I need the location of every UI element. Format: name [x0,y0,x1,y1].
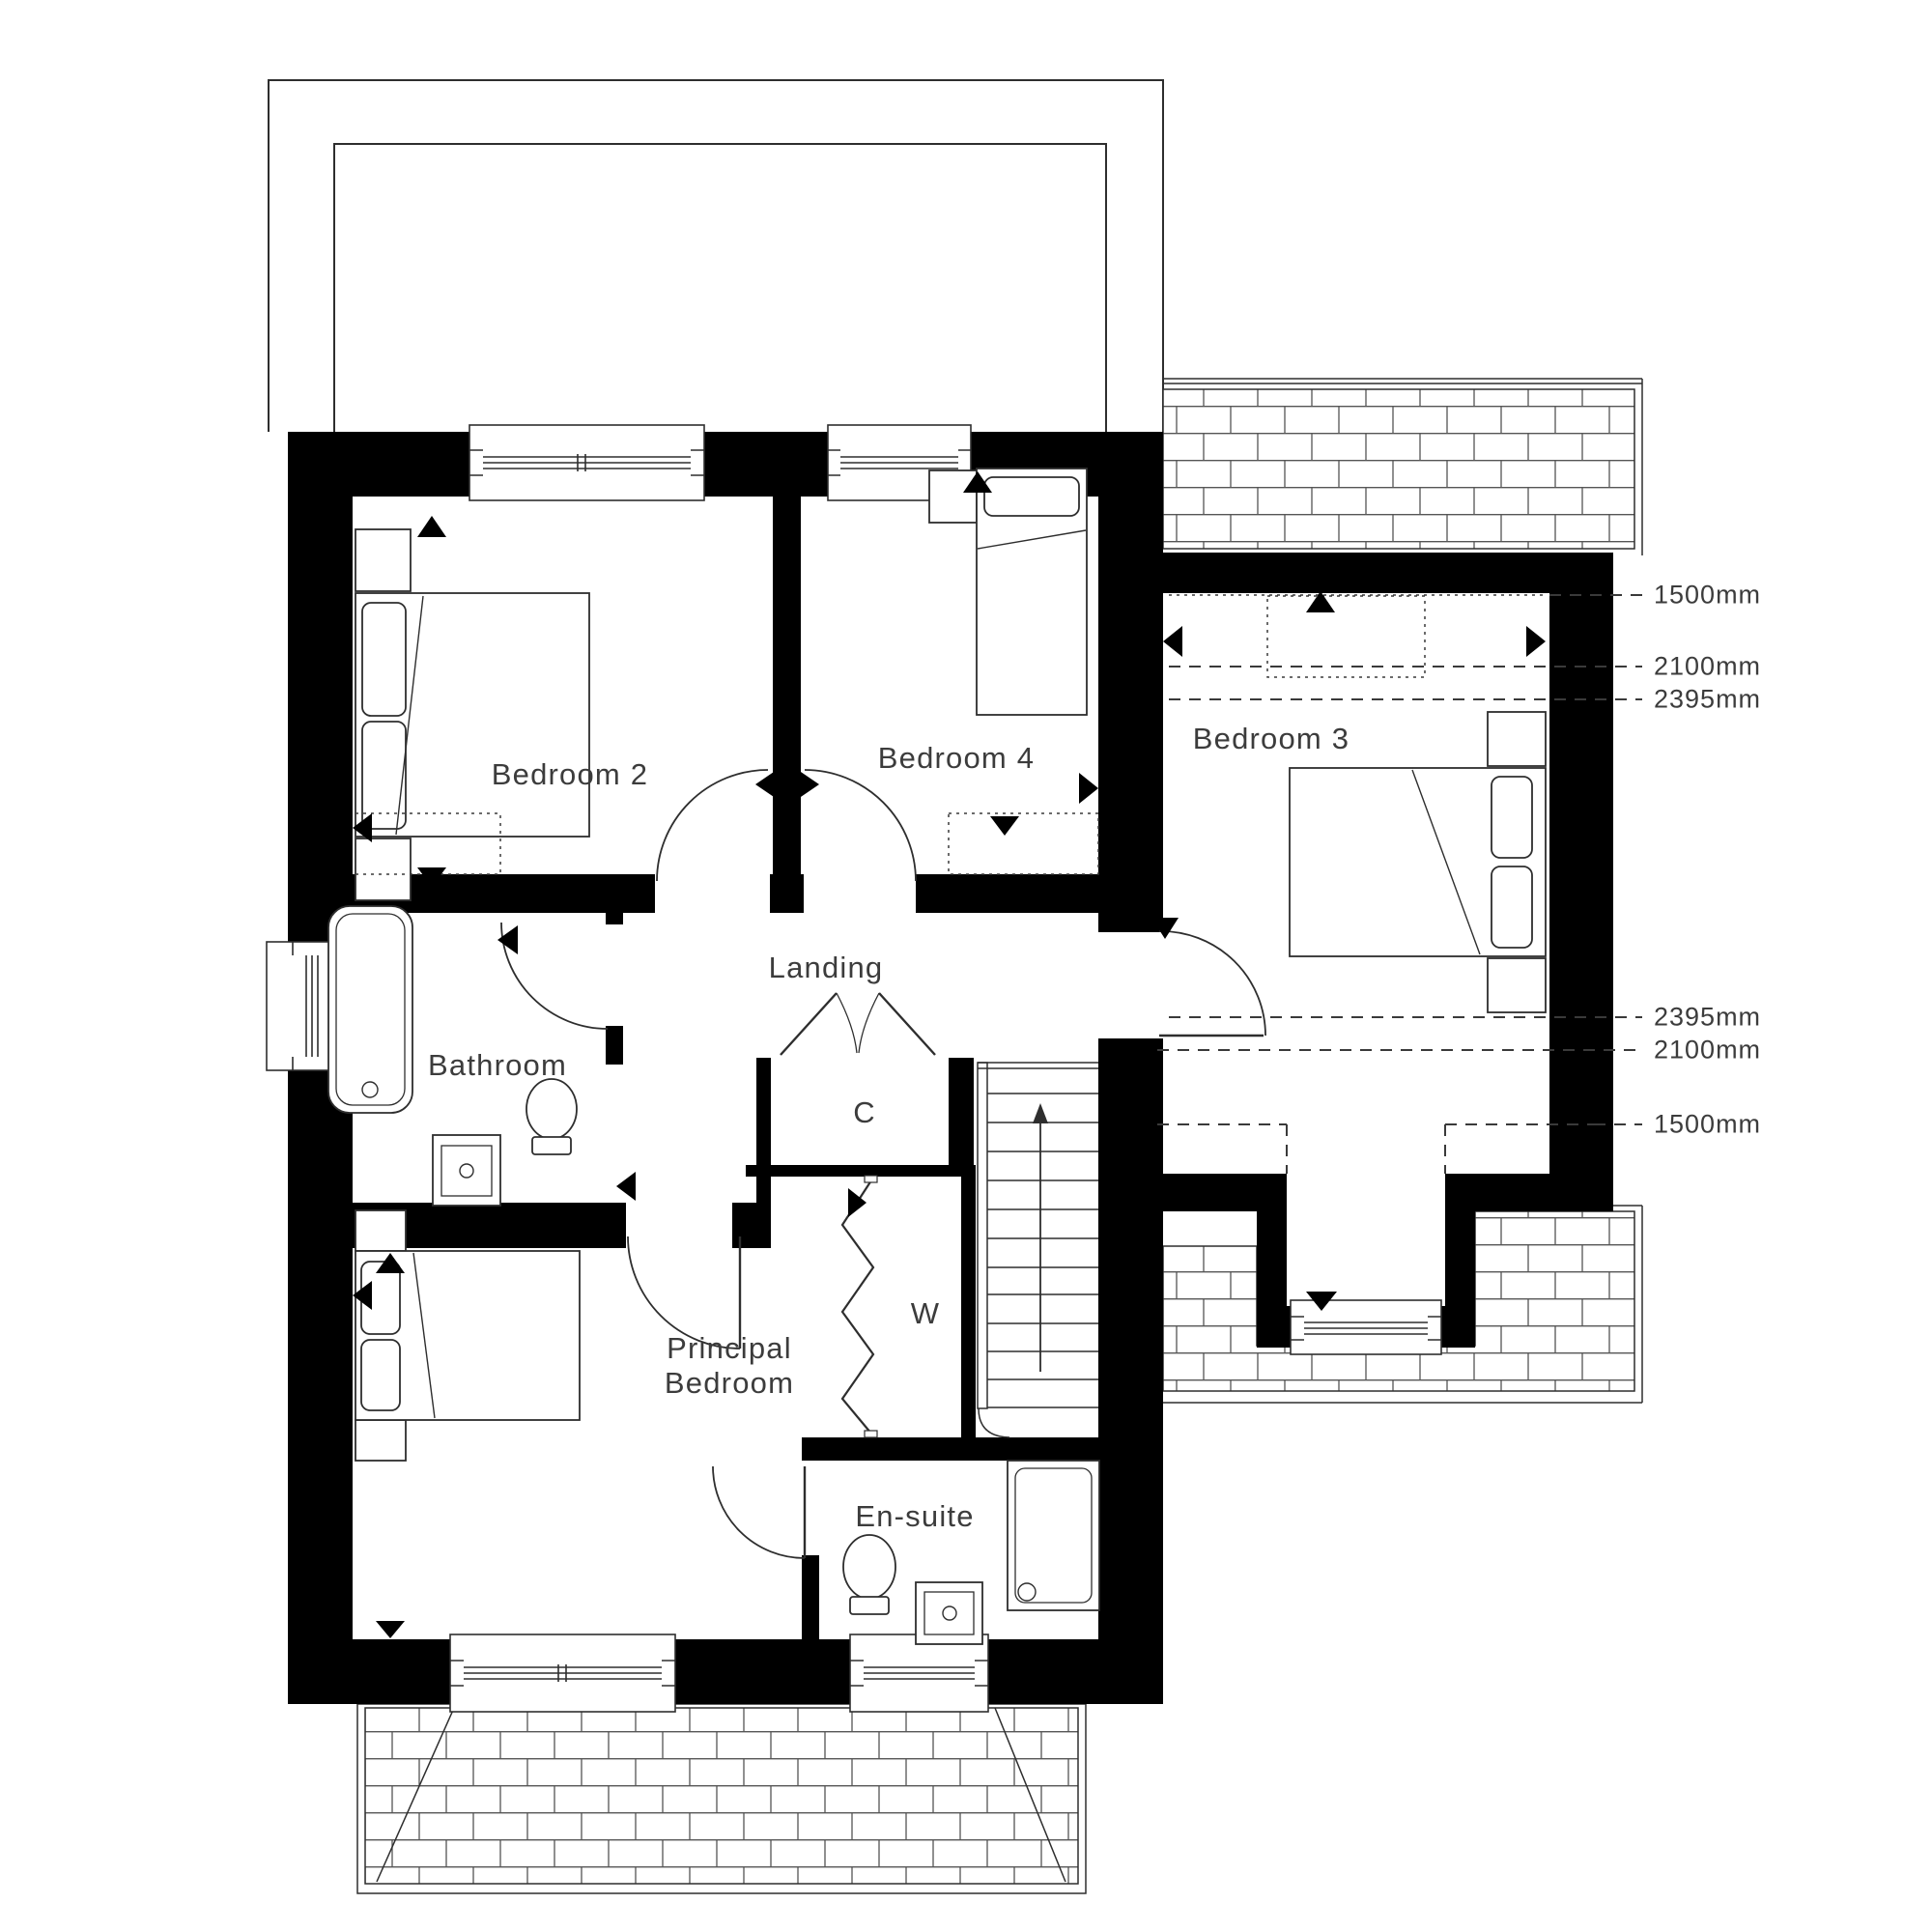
window-bedroom2 [469,425,704,500]
door-bedroom2 [657,770,768,881]
room-label-cupboard: C [853,1095,876,1130]
bathroom-sink [433,1135,500,1206]
stairs [978,1063,1098,1437]
window-ensuite [850,1634,988,1712]
dim-label-top-2395: 2395mm [1654,685,1761,715]
room-label-bathroom: Bathroom [428,1048,567,1083]
window-principal [450,1634,675,1712]
dim-label-top-1500: 1500mm [1654,581,1761,611]
marker-principal-down [376,1621,405,1638]
floorplan-canvas: Bedroom 2 Bedroom 4 Bedroom 3 Landing Ba… [0,0,1932,1932]
room-label-landing: Landing [769,951,884,985]
room-label-principal-line2: Bedroom [665,1366,794,1401]
dim-label-bottom-2395: 2395mm [1654,1003,1761,1033]
room-label-bedroom3: Bedroom 3 [1193,722,1350,756]
door-ensuite [713,1466,805,1558]
room-label-wardrobe: W [911,1296,940,1331]
wedge-principal-door [616,1172,636,1201]
door-bedroom3 [1159,931,1265,1036]
roof-top-right [1163,389,1634,549]
room-label-bedroom2: Bedroom 2 [492,757,648,792]
wardrobe-rail [842,1176,877,1437]
wedge-bedroom4-door [798,770,819,799]
bed-bedroom3 [1290,712,1546,1012]
door-bedroom4 [805,770,916,881]
marker-bedroom4-right [1079,773,1098,804]
room-label-ensuite: En-suite [855,1499,974,1534]
dim-label-top-2100: 2100mm [1654,652,1761,682]
room-label-principal: Principal Bedroom [665,1331,794,1401]
roof-outline [269,80,1163,432]
bed-bedroom2 [355,529,589,900]
marker-bedroom2-up [417,516,446,537]
door-cupboard-double [781,993,935,1055]
marker-bedroom3-left [1163,626,1182,657]
wardrobe-zone-bedroom4 [949,813,1098,874]
room-label-principal-line1: Principal [665,1331,794,1366]
bed-bedroom4 [929,469,1087,715]
wedge-bathroom-door [497,925,518,954]
roof-window-zone [1267,596,1425,677]
stairs-up-arrow [1033,1103,1048,1123]
room-label-bedroom4: Bedroom 4 [878,741,1035,776]
marker-bedroom3-right [1526,626,1546,657]
dim-label-bottom-2100: 2100mm [1654,1036,1761,1065]
roof-porch [365,1708,1078,1884]
ensuite-sink [916,1582,982,1644]
ensuite-toilet [843,1535,895,1614]
bathtub [328,906,412,1113]
shower [1008,1461,1099,1610]
wedge-bedroom2-door [755,770,777,799]
floorplan-drawing [0,0,1932,1932]
window-dormer [1291,1300,1441,1354]
bathroom-toilet [526,1079,577,1154]
marker-bedroom4-down [990,816,1019,836]
dim-label-bottom-1500: 1500mm [1654,1110,1761,1140]
